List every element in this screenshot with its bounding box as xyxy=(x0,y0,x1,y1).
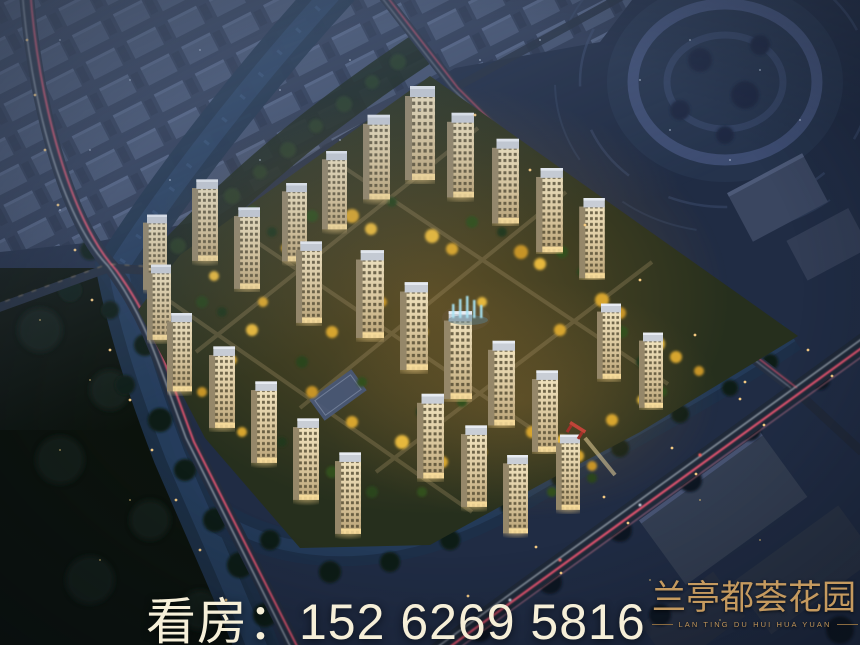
vignette xyxy=(0,0,860,645)
promo-image: 看房：152 6269 5816 兰亭都荟花园 LAN TING DU HUI … xyxy=(0,0,860,645)
aerial-render xyxy=(0,0,860,645)
